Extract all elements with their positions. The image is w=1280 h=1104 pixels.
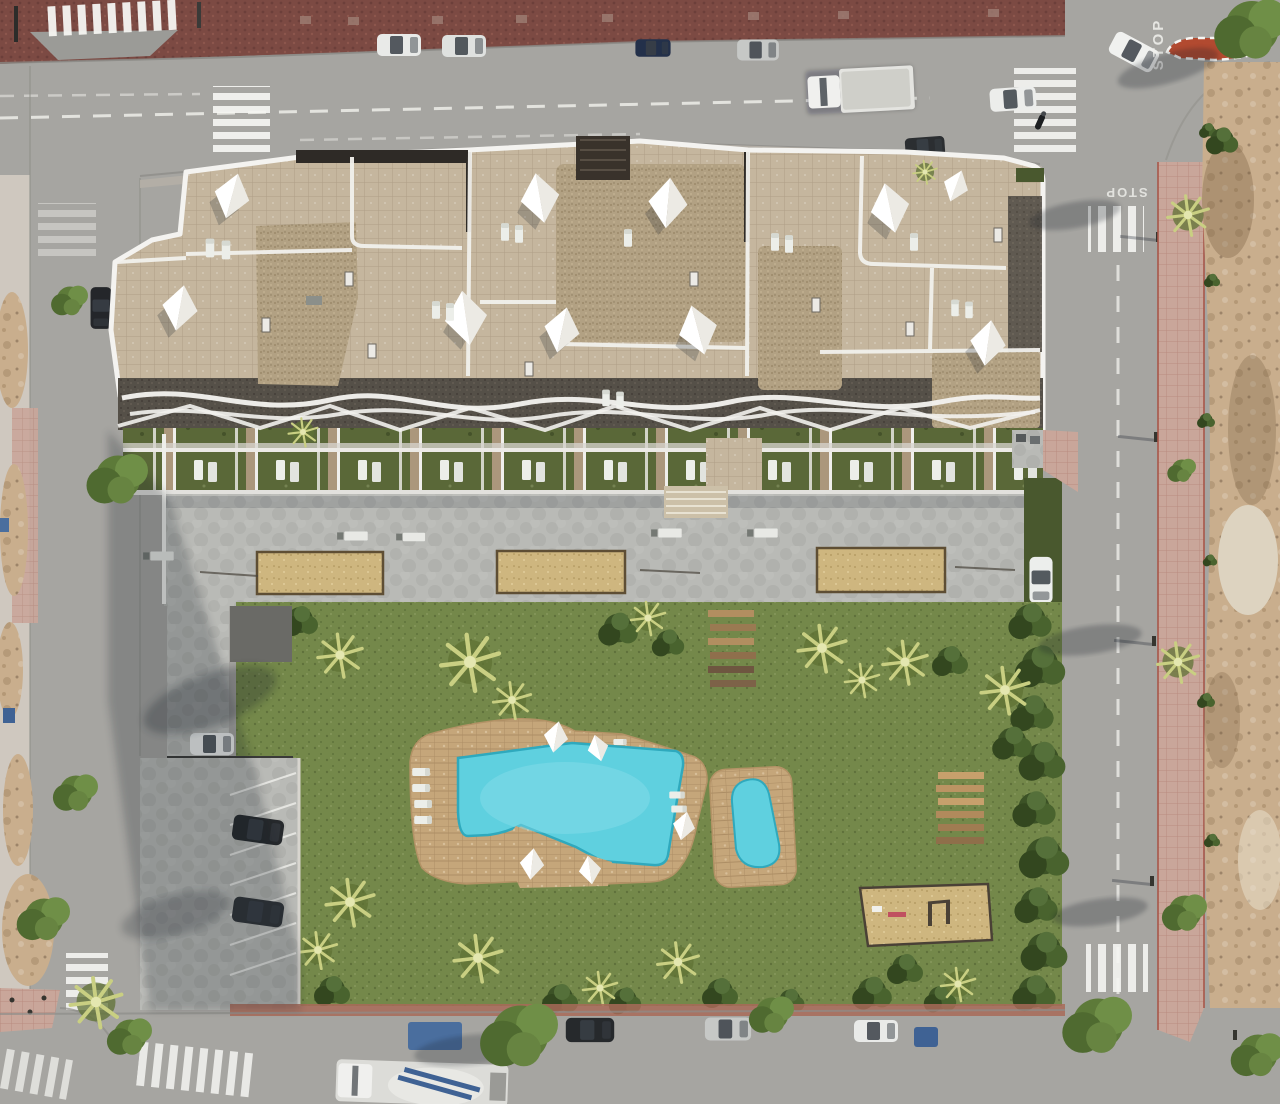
- parked-car-blue: [635, 39, 670, 57]
- street-lamp: [197, 2, 201, 28]
- parked-dark-car: [566, 1018, 614, 1042]
- wall-shadow: [164, 496, 1024, 508]
- stop-marking: STOP: [1104, 185, 1147, 200]
- blue-bin: [914, 1027, 938, 1047]
- recycle-bin: [0, 518, 9, 532]
- tile-path: [706, 438, 762, 490]
- lamp-post: [1233, 1030, 1237, 1040]
- rubble-pile: [1218, 505, 1278, 615]
- garage-ramp: [230, 606, 292, 662]
- gravel-roof: [556, 164, 746, 342]
- roof-hedge: [1016, 168, 1044, 182]
- petanque-court: [817, 548, 945, 592]
- bench: [396, 533, 425, 542]
- parked-white-car: [854, 1020, 898, 1042]
- gravel-roof: [758, 246, 842, 390]
- pool-highlight: [480, 762, 650, 834]
- parked-dark-car: [91, 287, 112, 329]
- recycle-bin: [3, 708, 15, 723]
- parked-white-car: [1029, 557, 1052, 603]
- parked-car-white: [377, 34, 421, 56]
- faded-crosswalk: [38, 203, 96, 259]
- crosswalk: [213, 86, 270, 158]
- crosswalk: [1086, 944, 1148, 992]
- roof-pergola: [576, 136, 630, 180]
- apartment-building: [111, 136, 1044, 432]
- parked-car-silver: [737, 40, 779, 61]
- box-truck: [805, 65, 915, 115]
- parked-car-white: [442, 35, 486, 57]
- parked-silver-car: [705, 1017, 751, 1040]
- cement-mixer-truck: [335, 1059, 508, 1104]
- white-van: [989, 86, 1037, 112]
- bench: [747, 529, 778, 538]
- traffic-light-pole: [14, 6, 18, 42]
- petanque-court: [497, 551, 625, 593]
- crosswalk: [1014, 68, 1076, 154]
- play-equipment: [888, 912, 906, 917]
- sand-playground: [860, 884, 992, 946]
- bench: [651, 529, 682, 538]
- petanque-court: [257, 552, 383, 594]
- render-canvas: STOP STOP STOP: [0, 0, 1280, 1104]
- dark-parapet: [296, 150, 468, 163]
- bench: [337, 532, 368, 541]
- roof-table: [306, 296, 322, 305]
- garden: [236, 602, 1069, 1014]
- aerial-development-render: STOP STOP STOP: [0, 0, 1280, 1104]
